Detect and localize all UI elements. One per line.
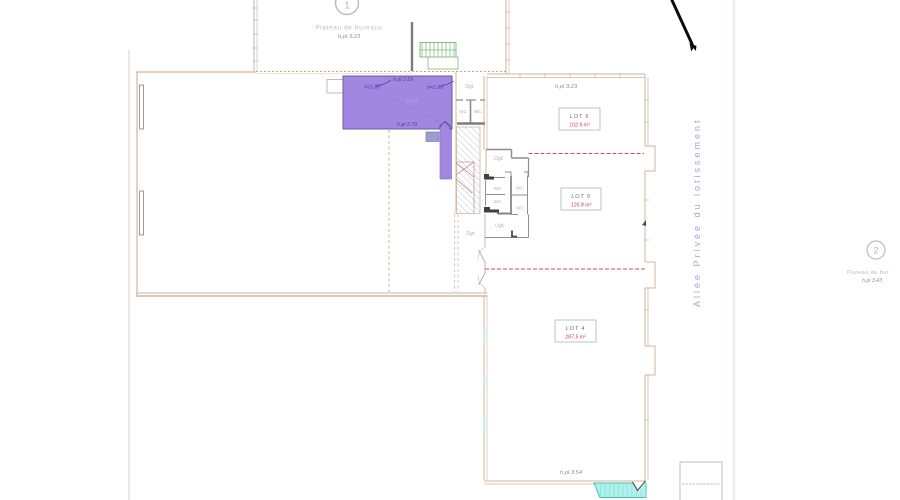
svg-text:WC: WC [474, 109, 482, 114]
svg-text:Allée Privée du lotissement: Allée Privée du lotissement [692, 117, 702, 307]
svg-text:Dgt.: Dgt. [465, 84, 474, 90]
svg-text:h.pl 3.43: h.pl 3.43 [862, 278, 882, 284]
svg-text:h=1.80: h=1.80 [364, 85, 380, 91]
svg-text:Dgt.: Dgt. [494, 156, 504, 162]
svg-text:126.8 m²: 126.8 m² [571, 203, 592, 209]
svg-text:Dgt.: Dgt. [466, 231, 475, 237]
svg-text:WC: WC [516, 186, 524, 191]
svg-text:LOT 4: LOT 4 [566, 326, 586, 332]
svg-text:LOT 6: LOT 6 [570, 114, 590, 120]
svg-text:Ugt.: Ugt. [495, 223, 505, 229]
svg-text:h=1.80: h=1.80 [427, 85, 443, 91]
svg-text:WC: WC [516, 206, 524, 211]
svg-text:1: 1 [344, 1, 350, 12]
svg-text:2: 2 [873, 246, 878, 256]
svg-text:local: local [406, 99, 419, 105]
svg-text:Plateau de bur: Plateau de bur [847, 270, 889, 276]
svg-text:287.5 m²: 287.5 m² [564, 335, 586, 341]
svg-text:h.pl 2.79: h.pl 2.79 [397, 122, 417, 128]
svg-text:LOT 5: LOT 5 [571, 194, 591, 200]
svg-text:WC: WC [459, 109, 467, 114]
svg-text:h.pl 3.23: h.pl 3.23 [338, 34, 361, 40]
svg-text:102.9 m²: 102.9 m² [569, 123, 590, 129]
svg-text:h.pl 3.23: h.pl 3.23 [555, 84, 578, 90]
svg-text:WC: WC [494, 186, 502, 191]
svg-text:h.pl 2.59: h.pl 2.59 [393, 77, 413, 83]
svg-text:WC: WC [494, 199, 502, 204]
svg-text:h.pl 3.54: h.pl 3.54 [560, 470, 582, 476]
svg-text:Plateau de bureaux: Plateau de bureaux [315, 25, 382, 32]
